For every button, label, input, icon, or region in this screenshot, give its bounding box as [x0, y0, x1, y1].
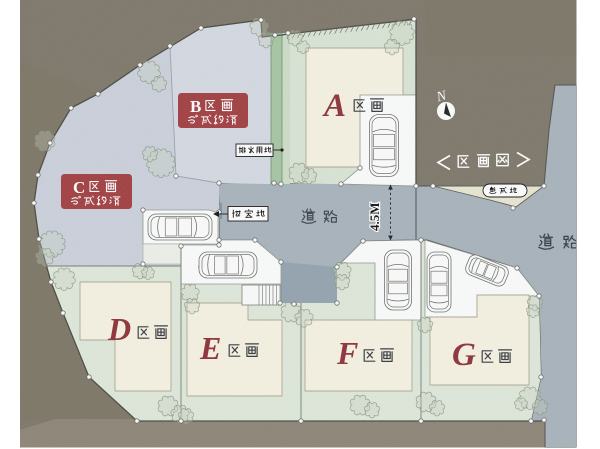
svg-text:A: A	[322, 88, 346, 124]
svg-text:E: E	[199, 330, 221, 366]
svg-text:G: G	[452, 337, 476, 373]
svg-text:C: C	[73, 178, 85, 197]
svg-text:D: D	[107, 311, 131, 347]
svg-text:B: B	[190, 97, 201, 116]
svg-text:4.5M: 4.5M	[367, 202, 382, 231]
svg-text:F: F	[336, 335, 358, 371]
